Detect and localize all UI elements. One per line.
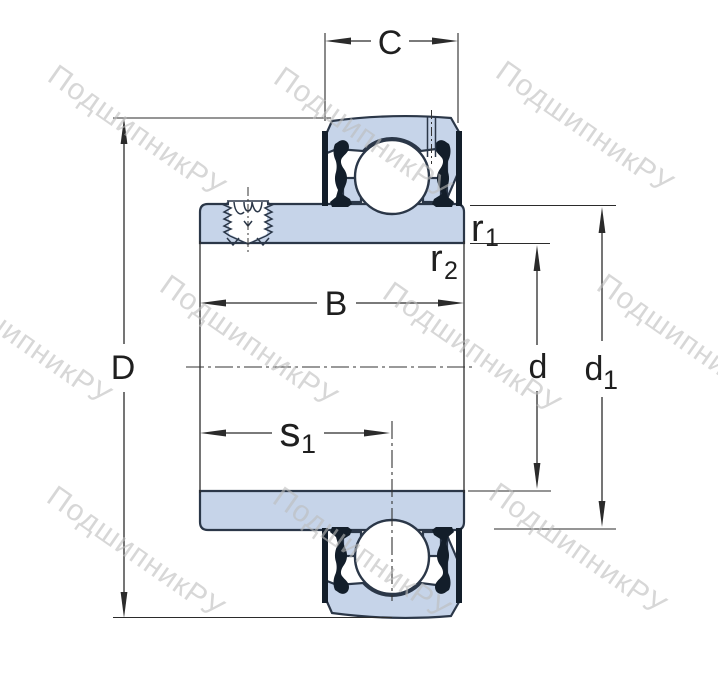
label-C: C: [378, 24, 403, 62]
label-s1-sub: 1: [301, 429, 316, 459]
label-r2: r: [430, 238, 443, 280]
watermark-text: ПодшипникРУ: [154, 269, 343, 415]
label-d1: d: [585, 350, 604, 388]
dimension-s1: s 1: [200, 408, 390, 459]
bearing-drawing: C D B s 1 d d 1 r 1 r: [0, 0, 718, 682]
watermark-text: ПодшипникРУ: [0, 267, 117, 413]
watermark-text: ПодшипникРУ: [483, 477, 672, 623]
dimension-r2: r 2: [430, 238, 458, 285]
label-D: D: [111, 349, 136, 387]
label-s1: s: [280, 408, 301, 455]
watermark-text: ПодшипникРУ: [42, 59, 231, 205]
watermark-layer: ПодшипникРУ ПодшипникРУ ПодшипникРУ Подш…: [0, 55, 718, 627]
dimension-r1: r 1: [471, 208, 499, 252]
label-d1-sub: 1: [603, 365, 618, 395]
label-r1-sub: 1: [485, 224, 499, 252]
watermark-text: ПодшипникРУ: [490, 55, 679, 201]
label-r1: r: [471, 208, 484, 250]
grub-screw: [224, 187, 272, 254]
label-B: B: [325, 285, 348, 323]
label-r2-sub: 2: [444, 257, 458, 285]
bearing-drawing-page: C D B s 1 d d 1 r 1 r: [0, 0, 718, 682]
